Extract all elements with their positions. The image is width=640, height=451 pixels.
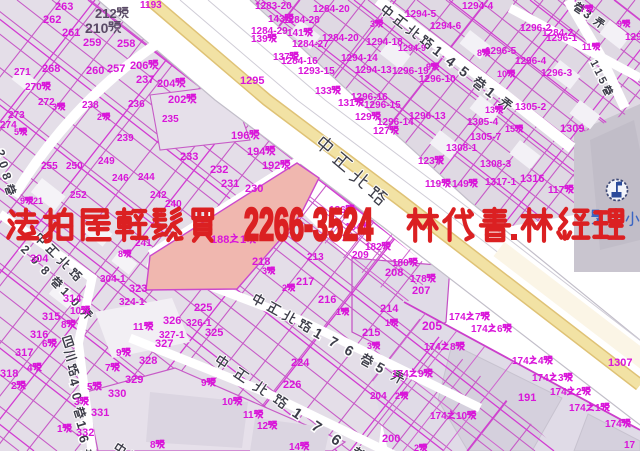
svg-text:202: 202 [168,94,186,106]
svg-text:210: 210 [85,20,109,36]
svg-text:260: 260 [86,65,104,77]
svg-text:7: 7 [105,363,111,374]
svg-text:8: 8 [118,249,123,259]
svg-text:2: 2 [395,391,400,401]
svg-text:217: 217 [296,276,314,288]
svg-text:230: 230 [245,183,263,195]
svg-text:149: 149 [452,179,469,190]
svg-text:233: 233 [180,151,198,163]
svg-text:1317-1: 1317-1 [485,177,517,188]
svg-text:10: 10 [222,397,234,408]
svg-text:1284-28: 1284-28 [283,15,320,26]
svg-text:1296-15: 1296-15 [364,100,401,111]
svg-text:9: 9 [418,369,424,380]
svg-text:246: 246 [112,173,129,184]
svg-text:174: 174 [605,419,622,430]
svg-text:1296-13: 1296-13 [409,111,446,122]
svg-text:10: 10 [70,306,82,317]
svg-text:1296-2: 1296-2 [520,23,552,34]
svg-text:330: 330 [108,388,126,400]
svg-text:174: 174 [532,373,549,384]
svg-text:9: 9 [426,62,431,72]
svg-text:4: 4 [538,356,544,367]
svg-text:5: 5 [14,127,19,137]
svg-text:2: 2 [97,112,102,122]
svg-text:226: 226 [283,379,301,391]
svg-text:1: 1 [595,403,601,414]
svg-text:3: 3 [558,373,564,384]
svg-text:1308-1: 1308-1 [446,143,478,154]
svg-text:331: 331 [91,407,109,419]
svg-text:1283-20: 1283-20 [255,1,292,12]
svg-text:209: 209 [352,250,369,261]
svg-text:9: 9 [116,348,122,359]
svg-text:1309: 1309 [560,123,584,135]
svg-text:2: 2 [282,283,287,293]
svg-text:1296-14: 1296-14 [377,117,414,128]
svg-text:238: 238 [82,100,99,111]
svg-text:3: 3 [367,341,372,351]
svg-text:11: 11 [582,42,592,52]
svg-text:268: 268 [42,63,60,75]
svg-text:1296-4: 1296-4 [515,56,547,67]
svg-text:270: 270 [25,82,42,93]
svg-text:1305-2: 1305-2 [515,102,547,113]
svg-text:8: 8 [61,320,67,331]
svg-text:129: 129 [625,32,640,43]
svg-text:215: 215 [362,327,380,339]
svg-text:10: 10 [497,69,507,79]
svg-text:3: 3 [52,102,57,112]
svg-text:117: 117 [548,185,565,196]
svg-text:8: 8 [450,342,456,353]
svg-text:174: 174 [569,403,586,414]
svg-text:271: 271 [14,67,31,78]
svg-text:1284-29: 1284-29 [251,26,288,37]
svg-text:1294-6: 1294-6 [430,21,462,32]
svg-text:174: 174 [430,411,447,422]
svg-text:314: 314 [63,293,82,305]
svg-text:204: 204 [370,391,387,402]
svg-text:244: 244 [138,172,155,183]
svg-text:196: 196 [231,130,249,142]
svg-text:174: 174 [471,324,488,335]
svg-text:11: 11 [133,322,144,333]
svg-text:224: 224 [291,357,310,369]
svg-text:5: 5 [87,382,93,393]
svg-text:7: 7 [475,312,481,323]
svg-text:261: 261 [62,27,80,39]
svg-text:1296-10: 1296-10 [419,74,456,85]
svg-text:2: 2 [414,443,419,451]
svg-text:6: 6 [497,324,503,335]
svg-text:9: 9 [617,19,622,29]
svg-text:6: 6 [42,339,48,350]
svg-text:212: 212 [95,6,117,21]
svg-text:252: 252 [70,190,87,201]
svg-text:1284-27: 1284-27 [292,39,329,50]
svg-text:232: 232 [210,164,228,176]
svg-text:231: 231 [221,178,239,190]
svg-text:204: 204 [157,78,176,90]
svg-text:214: 214 [380,303,399,315]
svg-text:3: 3 [262,266,267,276]
svg-text:14: 14 [289,442,301,451]
svg-text:1296-3: 1296-3 [541,68,573,79]
svg-text:208: 208 [385,267,403,279]
svg-text:10: 10 [456,411,468,422]
svg-text:15: 15 [505,124,515,134]
svg-text:188: 188 [211,234,229,246]
svg-text:1: 1 [57,424,63,435]
svg-text:315: 315 [42,311,60,323]
svg-text:7: 7 [580,4,585,14]
svg-text:174: 174 [512,356,529,367]
svg-text:119: 119 [425,179,442,190]
svg-text:216: 216 [318,294,336,306]
svg-text:174: 174 [392,369,409,380]
svg-text:235: 235 [162,114,179,125]
svg-text:174: 174 [550,387,567,398]
svg-text:1294-9: 1294-9 [398,43,426,53]
svg-text:258: 258 [117,38,135,50]
svg-text:324-1: 324-1 [119,297,145,308]
svg-text:8: 8 [477,48,482,58]
svg-text:1294-13: 1294-13 [355,65,392,76]
svg-text:174: 174 [449,312,466,323]
svg-text:323: 323 [129,283,147,295]
svg-text:1293-15: 1293-15 [298,66,335,77]
svg-text:262: 262 [43,14,61,26]
svg-text:225: 225 [194,302,212,314]
svg-text:11: 11 [243,410,254,421]
svg-text:249: 249 [98,156,115,167]
svg-text:304: 304 [30,253,49,265]
svg-text:1308-3: 1308-3 [480,159,512,170]
svg-text:1294-14: 1294-14 [341,53,378,64]
svg-text:237: 237 [136,74,154,86]
svg-text:133: 133 [315,86,332,97]
svg-text:191: 191 [518,392,536,404]
svg-text:239: 239 [117,133,134,144]
svg-text:9: 9 [201,378,207,389]
svg-text:318: 318 [0,368,18,380]
svg-text:1284-20: 1284-20 [313,4,350,15]
svg-text:2: 2 [11,381,17,392]
svg-text:9: 9 [20,196,25,206]
svg-text:259: 259 [83,37,101,49]
svg-text:255: 255 [41,161,58,172]
svg-text:17: 17 [624,440,636,451]
svg-text:250: 250 [66,161,83,172]
svg-text:1: 1 [385,318,390,328]
svg-text:213: 213 [307,252,324,263]
svg-text:200: 200 [382,433,400,445]
svg-text:2: 2 [576,387,582,398]
svg-text:328: 328 [139,355,157,367]
svg-text:192: 192 [262,160,280,172]
svg-text:1305-4: 1305-4 [467,117,499,128]
svg-text:263: 263 [55,1,73,13]
svg-text:194: 194 [247,146,266,158]
svg-text:141: 141 [287,28,304,39]
svg-text:317: 317 [15,347,33,359]
svg-text:2266-3524: 2266-3524 [244,199,373,250]
svg-text:178: 178 [410,274,427,285]
svg-text:174: 174 [424,342,441,353]
svg-text:304-1: 304-1 [100,274,126,285]
svg-text:21: 21 [33,196,43,206]
svg-text:13: 13 [485,105,495,115]
svg-text:207: 207 [412,285,430,297]
svg-text:257: 257 [107,63,125,75]
svg-text:3: 3 [74,397,80,408]
svg-text:1: 1 [336,307,341,317]
svg-text:236: 236 [128,99,145,110]
svg-text:1294-4: 1294-4 [462,1,494,12]
svg-text:205: 205 [422,319,442,333]
svg-text:4: 4 [27,363,33,374]
svg-text:1316: 1316 [520,173,544,185]
svg-text:1294-5: 1294-5 [405,9,437,20]
svg-text:1193: 1193 [140,0,162,11]
svg-text:206: 206 [130,60,148,72]
svg-text:1305-7: 1305-7 [470,132,502,143]
svg-text:327: 327 [155,338,173,350]
svg-text:325: 325 [205,327,223,339]
svg-text:1307: 1307 [608,357,632,369]
svg-text:12: 12 [257,421,269,432]
svg-text:123: 123 [418,156,435,167]
svg-text:8: 8 [150,440,156,451]
svg-text:332: 332 [76,427,94,439]
svg-text:3: 3 [370,19,375,29]
svg-text:329: 329 [125,374,143,386]
svg-text:1295: 1295 [240,75,264,87]
svg-text:326: 326 [163,315,181,327]
svg-text:129: 129 [355,112,372,123]
